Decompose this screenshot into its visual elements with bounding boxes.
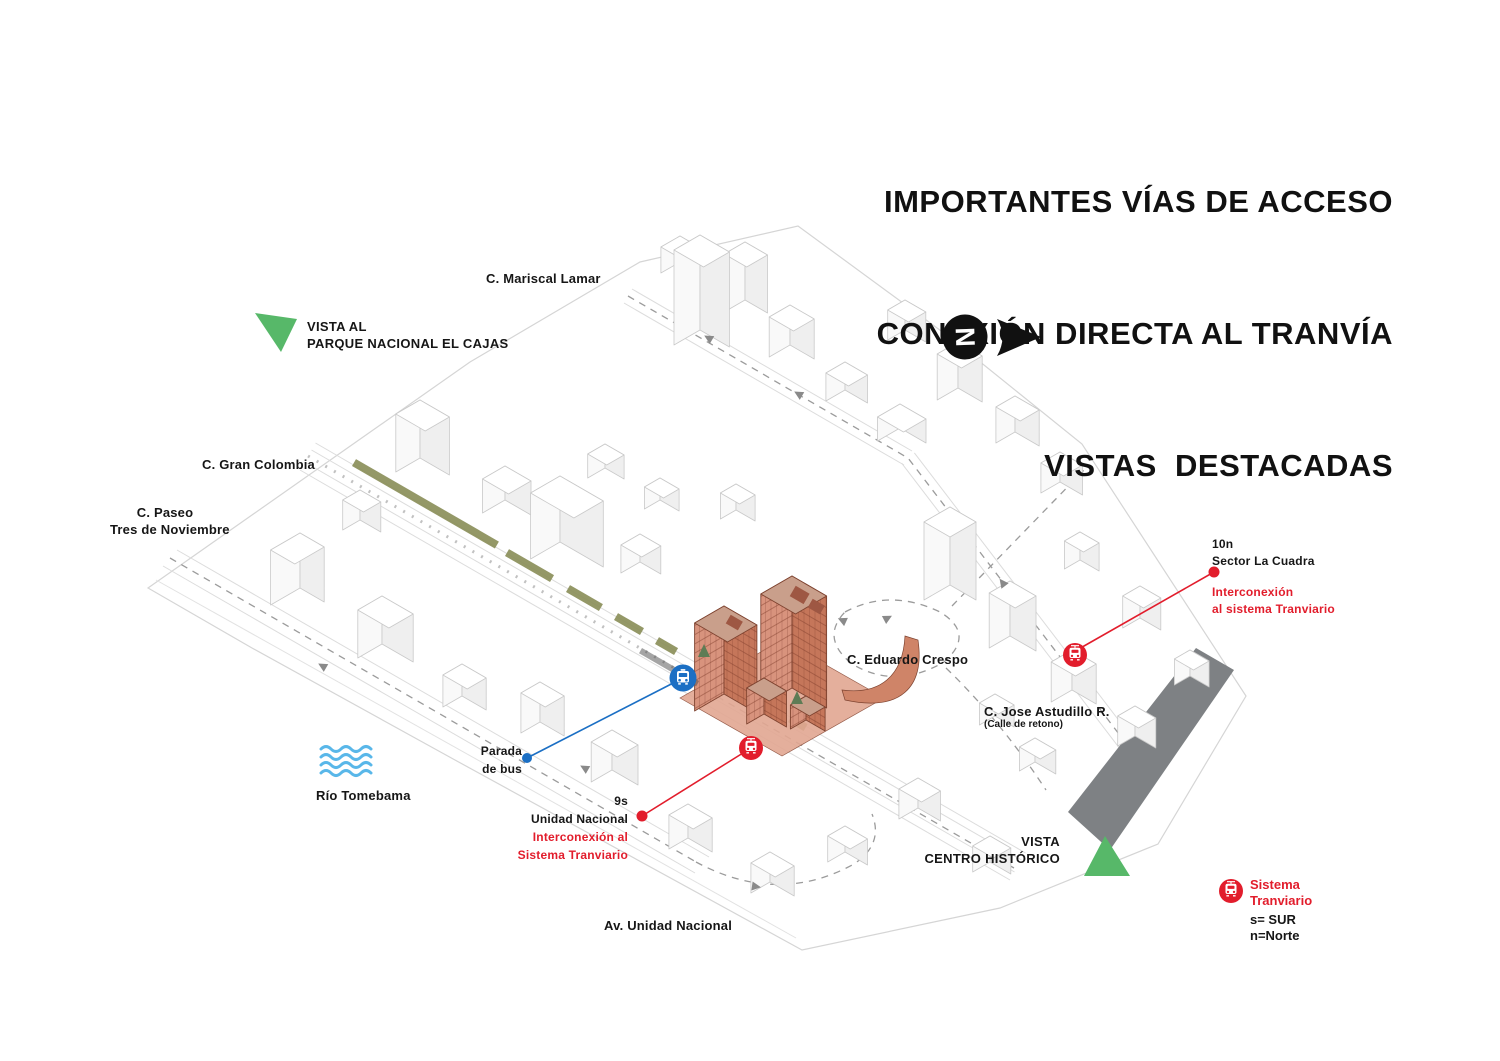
vista-cajas: VISTA AL PARQUE NACIONAL EL CAJAS <box>253 310 509 354</box>
river-name: Río Tomebama <box>316 788 411 803</box>
tram-stop-norte-note1: Interconexión <box>1212 584 1335 601</box>
legend-line1: Sistema <box>1250 877 1388 893</box>
bus-stop-label: Parada de bus <box>440 742 522 778</box>
tram-stop-norte-label: 10n Sector La Cuadra Interconexión al si… <box>1212 536 1335 618</box>
street-label-eduardo-crespo: C. Eduardo Crespo <box>847 652 968 667</box>
vista-historico-line2: CENTRO HISTÓRICO <box>918 850 1060 867</box>
tram-stop-sur-name: Unidad Nacional <box>468 810 628 828</box>
waves-icon <box>318 744 376 778</box>
vista-historico-label: VISTA CENTRO HISTÓRICO <box>918 833 1060 867</box>
tram-stop-norte-name: Sector La Cuadra <box>1212 553 1335 570</box>
vista-cajas-line2: PARQUE NACIONAL EL CAJAS <box>307 335 509 352</box>
tram-stop-sur-note2: Sistema Tranviario <box>468 846 628 864</box>
vista-triangle-icon <box>253 310 299 354</box>
street-label-jose-astudillo: C. Jose Astudillo R. (Calle de retono) <box>984 704 1110 731</box>
street-label-jose-astudillo-name: C. Jose Astudillo R. <box>984 704 1110 719</box>
title-line-1: IMPORTANTES VÍAS DE ACCESO <box>877 180 1393 224</box>
north-letter: N <box>950 327 981 348</box>
street-label-mariscal-lamar: C. Mariscal Lamar <box>486 271 601 286</box>
tram-stop-sur-label: 9s Unidad Nacional Interconexión al Sist… <box>468 792 628 864</box>
vista-cajas-line1: VISTA AL <box>307 318 509 335</box>
bus-stop-line2: de bus <box>440 760 522 778</box>
vista-triangle-icon <box>1080 834 1134 878</box>
legend-line2: Tranviario <box>1250 893 1388 909</box>
legend-south: s= SUR <box>1250 912 1388 928</box>
legend: Sistema Tranviario s= SUR n=Norte <box>1218 877 1388 944</box>
tram-stop-sur-code: 9s <box>468 792 628 810</box>
tram-icon <box>1218 878 1244 904</box>
street-label-paseo-line1: C. Paseo <box>110 504 220 521</box>
tram-stop-norte-code: 10n <box>1212 536 1335 553</box>
building <box>674 235 729 347</box>
tram-icon <box>1063 643 1087 667</box>
bus-stop-dot <box>522 753 532 763</box>
street-label-paseo: C. Paseo Tres de Noviembre <box>110 504 220 538</box>
site-diagram: IMPORTANTES VÍAS DE ACCESO CONEXIÓN DIRE… <box>0 0 1500 1061</box>
street-label-paseo-line2: Tres de Noviembre <box>110 521 220 538</box>
tram-stop-sur-note1: Interconexión al <box>468 828 628 846</box>
tram-sur-dot <box>637 811 648 822</box>
street-label-jose-astudillo-note: (Calle de retono) <box>984 719 1110 731</box>
bus-icon <box>670 665 697 692</box>
street-label-gran-colombia: C. Gran Colombia <box>202 457 315 472</box>
north-arrow-icon: N <box>935 303 1055 375</box>
street-label-av-unidad-nacional: Av. Unidad Nacional <box>604 918 732 933</box>
title-line-3: VISTAS DESTACADAS <box>877 444 1393 488</box>
legend-north: n=Norte <box>1250 928 1388 944</box>
river-label-group: Río Tomebama <box>316 744 411 803</box>
vista-historico-line1: VISTA <box>918 833 1060 850</box>
tram-icon <box>739 736 763 760</box>
bus-stop-line1: Parada <box>440 742 522 760</box>
tram-stop-norte-note2: al sistema Tranviario <box>1212 601 1335 618</box>
